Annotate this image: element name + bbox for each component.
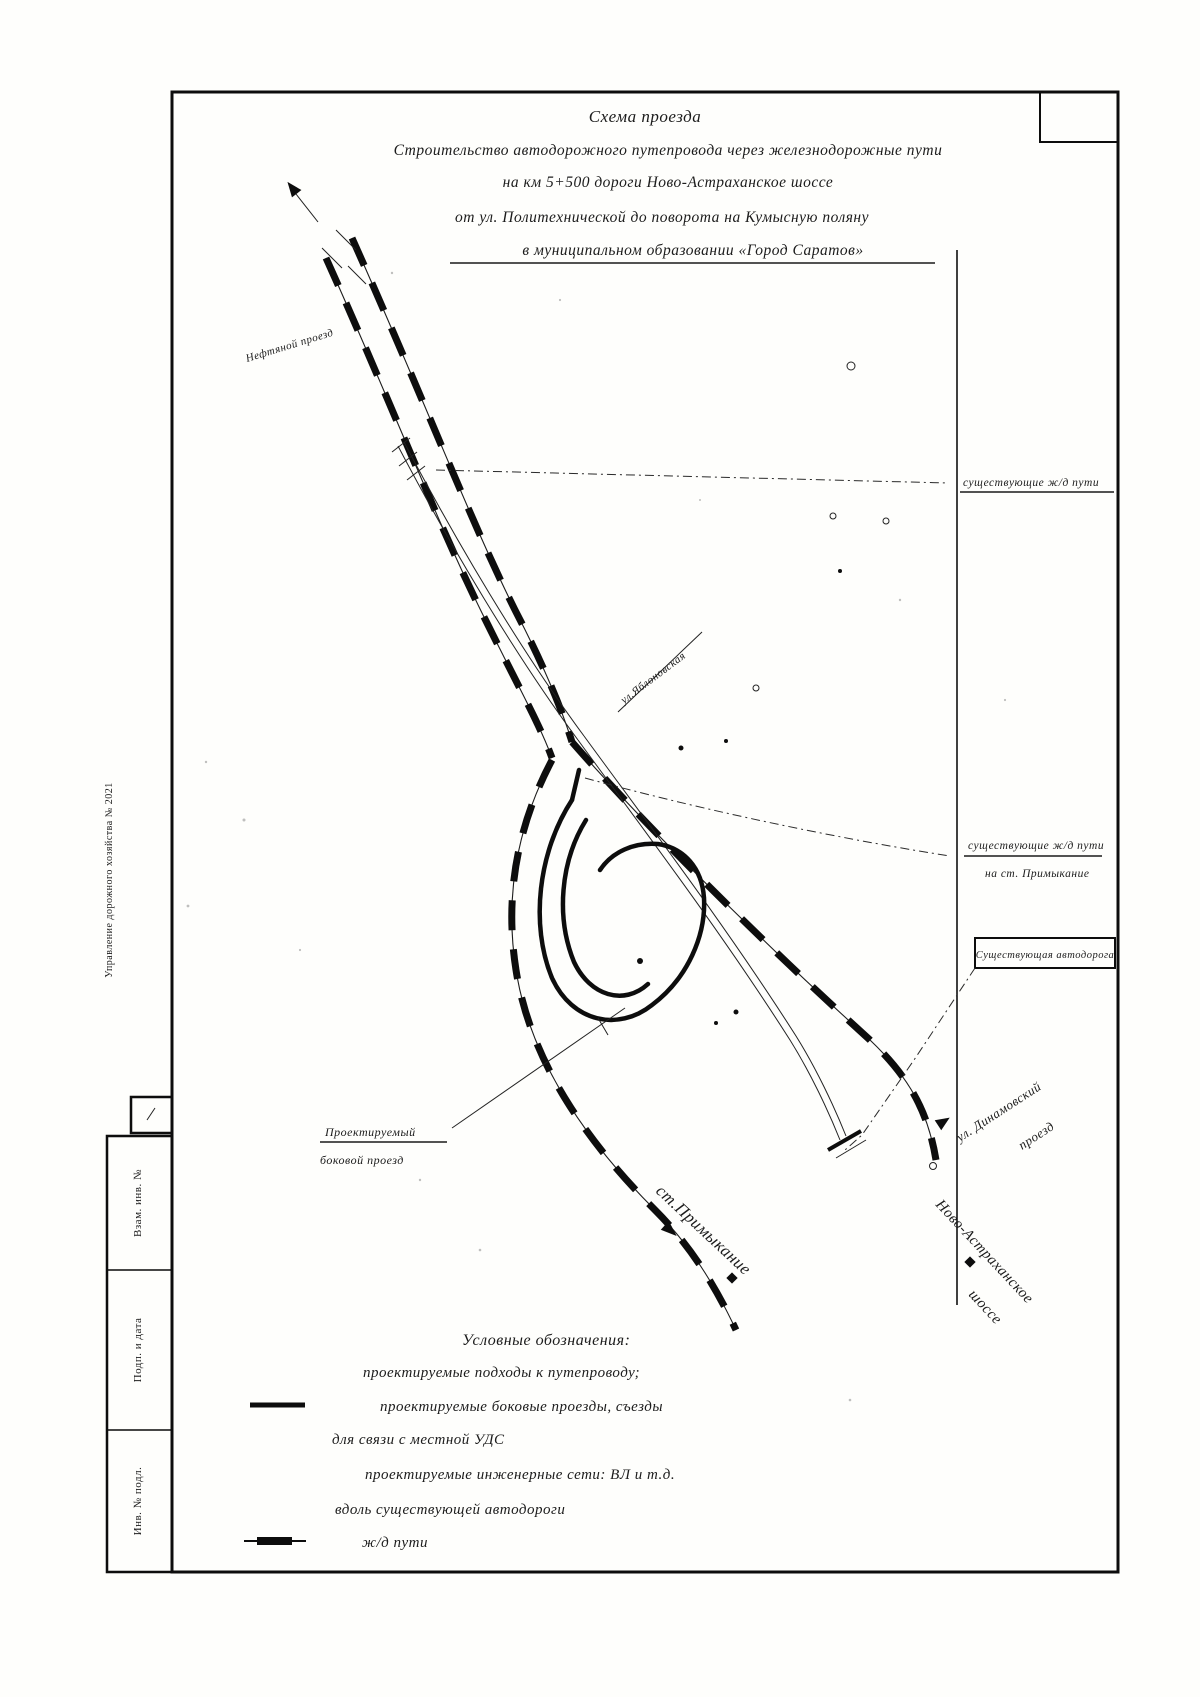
title-line-4: от ул. Политехнической до поворота на Ку…: [455, 209, 869, 226]
loop-dot: [637, 958, 643, 964]
railway-diamond-marker: [726, 1272, 737, 1283]
stamp-doc-line: Управление дорожного хозяйства № 2021: [104, 782, 115, 978]
street-arrow-icon: [935, 1113, 953, 1131]
callout-existing-tracks-top: существующие ж/д пути: [436, 470, 1114, 492]
stamp-side-column: Управление дорожного хозяйства № 2021 Вз…: [104, 782, 172, 1572]
dinamovsky-proezd: ул. Динамовский проезд: [935, 1079, 1057, 1153]
legend-title: Условные обозначения:: [462, 1332, 630, 1349]
frame-corner-notch: [1040, 92, 1118, 142]
callout-existing-tracks-primykanie: существующие ж/д пути на ст. Примыкание: [585, 778, 1104, 880]
proj-side-line2: боковой проезд: [320, 1153, 404, 1167]
railway-northwest-pair: [283, 178, 572, 758]
railway-primykanie-branch: [512, 760, 736, 1330]
label-projected-side-road: Проектируемый боковой проезд: [320, 1008, 625, 1167]
legend-item-utilities: проектируемые инженерные сети: ВЛ и т.д.: [365, 1467, 675, 1483]
label-yablonovskaya: ул.Яблоновская: [618, 650, 688, 707]
callout-c-leader: [845, 968, 975, 1150]
label-dinamovsky-proezd: проезд: [1015, 1118, 1056, 1152]
legend-item-along-road: вдоль существующей автодороги: [335, 1502, 565, 1518]
title-block: Схема проезда Строительство автодорожног…: [394, 107, 943, 263]
scan-speckles: [187, 272, 1007, 1402]
railway-start-arrow-icon: [283, 178, 302, 197]
proj-side-leader: [452, 1008, 625, 1128]
drawing-canvas: Схема проезда Строительство автодорожног…: [0, 0, 1200, 1697]
legend-item-local-network: для связи с местной УДС: [332, 1432, 505, 1448]
stamp-cell-inv-podl: Инв. № подл.: [132, 1467, 144, 1536]
novo-astrakhanskoe-shosse: Ново-Астраханское шоссе: [931, 1196, 1036, 1328]
access-road-double-line: [392, 438, 866, 1158]
title-line-3: на км 5+500 дороги Ново-Астраханское шос…: [503, 174, 834, 191]
proj-side-line1: Проектируемый: [324, 1125, 416, 1139]
callout-c-text: Существующая автодорога: [976, 950, 1115, 961]
yablonovskaya-street: ул.Яблоновская: [618, 632, 702, 712]
title-line-5: в муниципальном образовании «Город Сарат…: [522, 242, 863, 259]
label-novo-astrakhanskoe: Ново-Астраханское: [931, 1196, 1036, 1307]
label-neftyanoy-proezd: Нефтяной проезд: [243, 327, 335, 365]
railway-end-mark: [930, 1163, 937, 1170]
callout-b-line1: существующие ж/д пути: [968, 840, 1104, 852]
label-shosse: шоссе: [965, 1287, 1005, 1328]
stamp-cell-podp-data: Подп. и дата: [132, 1318, 144, 1383]
stamp-small-box: [131, 1097, 172, 1133]
stamp-cell-vzam-inv: Взам. инв. №: [132, 1169, 144, 1237]
survey-point-symbols: [679, 362, 890, 1025]
scanned-drawing-sheet: Схема проезда Строительство автодорожног…: [0, 0, 1200, 1697]
railway-start-tail: [296, 194, 318, 222]
legend-item-approaches: проектируемые подходы к путепроводу;: [363, 1365, 640, 1381]
title-line-2: Строительство автодорожного путепровода …: [394, 142, 943, 159]
title-line-1: Схема проезда: [589, 107, 701, 126]
callout-a-text: существующие ж/д пути: [963, 477, 1099, 489]
side-road-loop: [540, 770, 704, 1035]
legend: Условные обозначения: проектируемые подх…: [244, 1332, 675, 1551]
legend-item-side-roads: проектируемые боковые проезды, съезды: [380, 1399, 663, 1415]
legend-item-rail-tracks: ж/д пути: [362, 1535, 428, 1551]
road-diamond-marker: [964, 1256, 975, 1267]
callout-b-line2: на ст. Примыкание: [985, 868, 1089, 880]
callout-a-leader: [436, 470, 948, 483]
